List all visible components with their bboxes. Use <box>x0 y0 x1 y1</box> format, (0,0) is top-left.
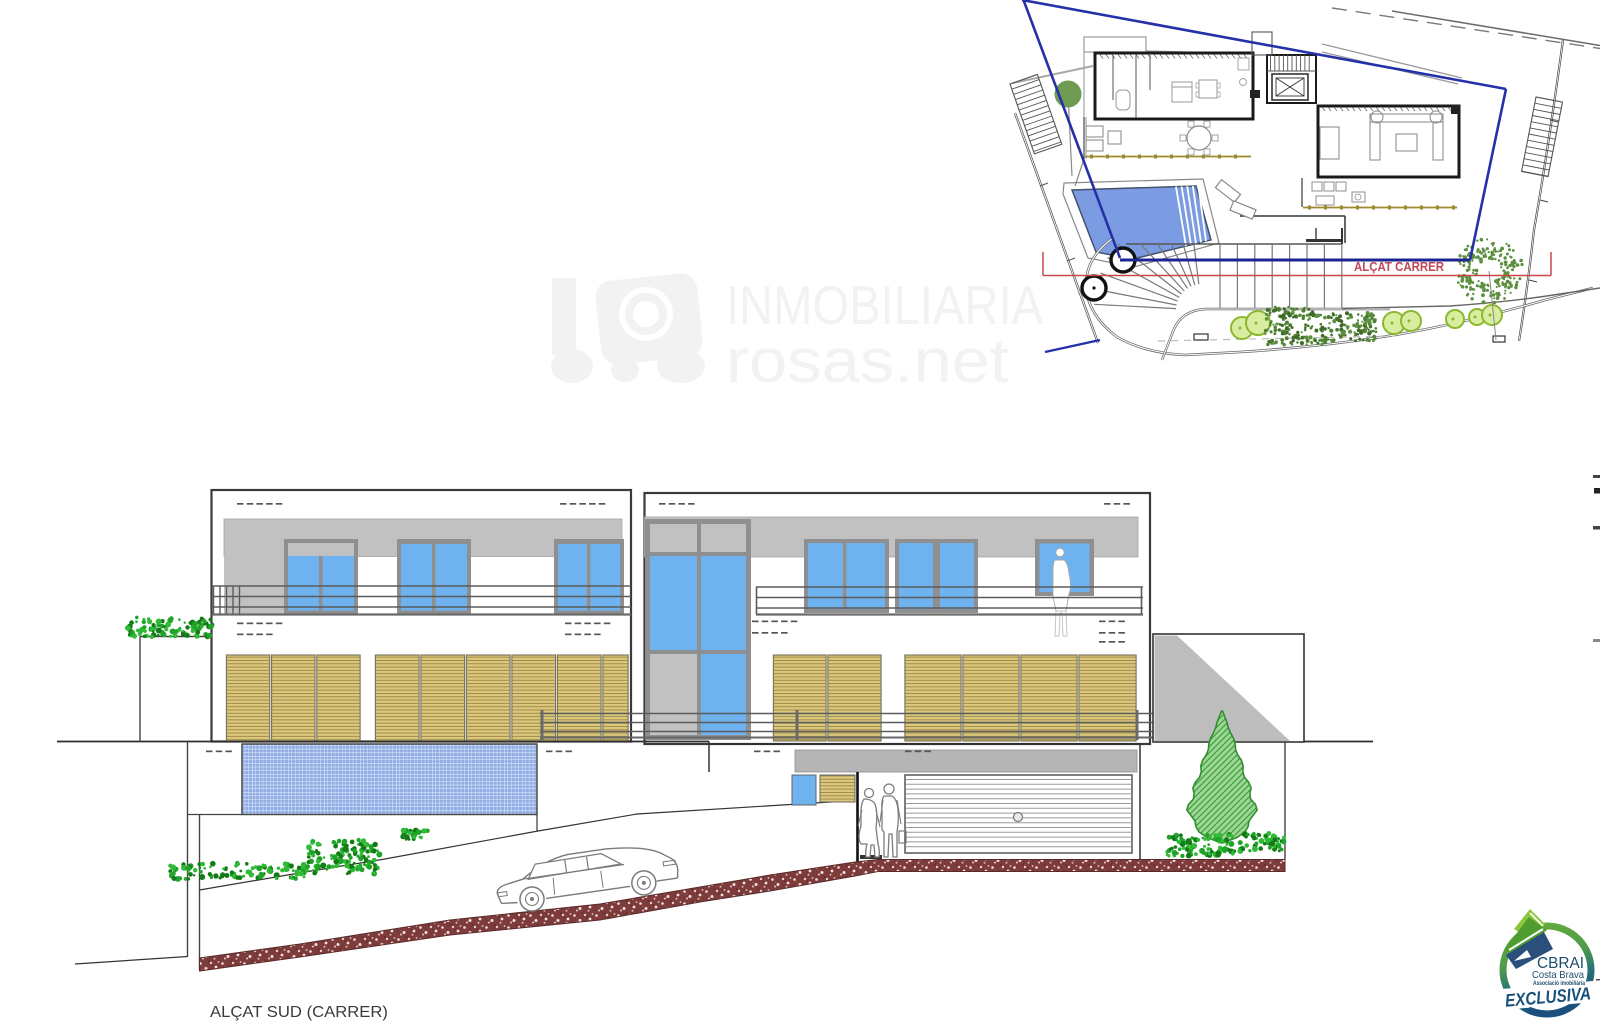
svg-text:Costa Brava: Costa Brava <box>1532 969 1584 981</box>
svg-text:ALÇAT SUD (CARRER): ALÇAT SUD (CARRER) <box>210 1004 388 1021</box>
svg-text:rosas.net: rosas.net <box>726 327 1009 396</box>
